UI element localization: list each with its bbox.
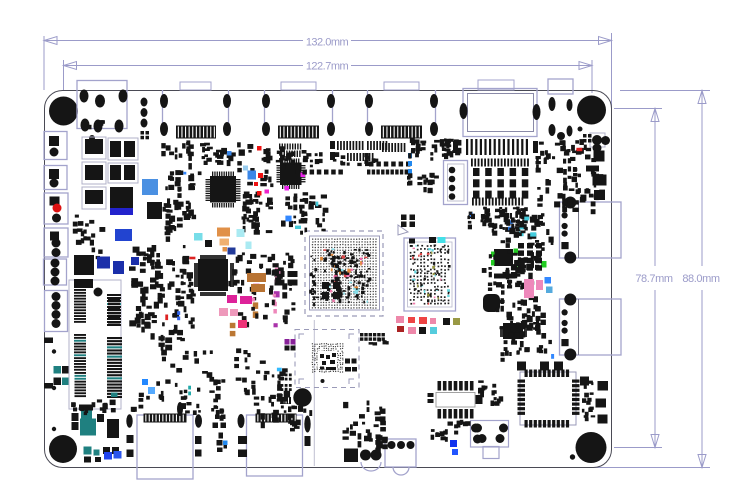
svg-text:88.0mm: 88.0mm xyxy=(682,273,720,285)
svg-text:122.7mm: 122.7mm xyxy=(306,61,349,73)
svg-text:78.7mm: 78.7mm xyxy=(635,273,673,285)
svg-text:132.0mm: 132.0mm xyxy=(306,37,349,49)
